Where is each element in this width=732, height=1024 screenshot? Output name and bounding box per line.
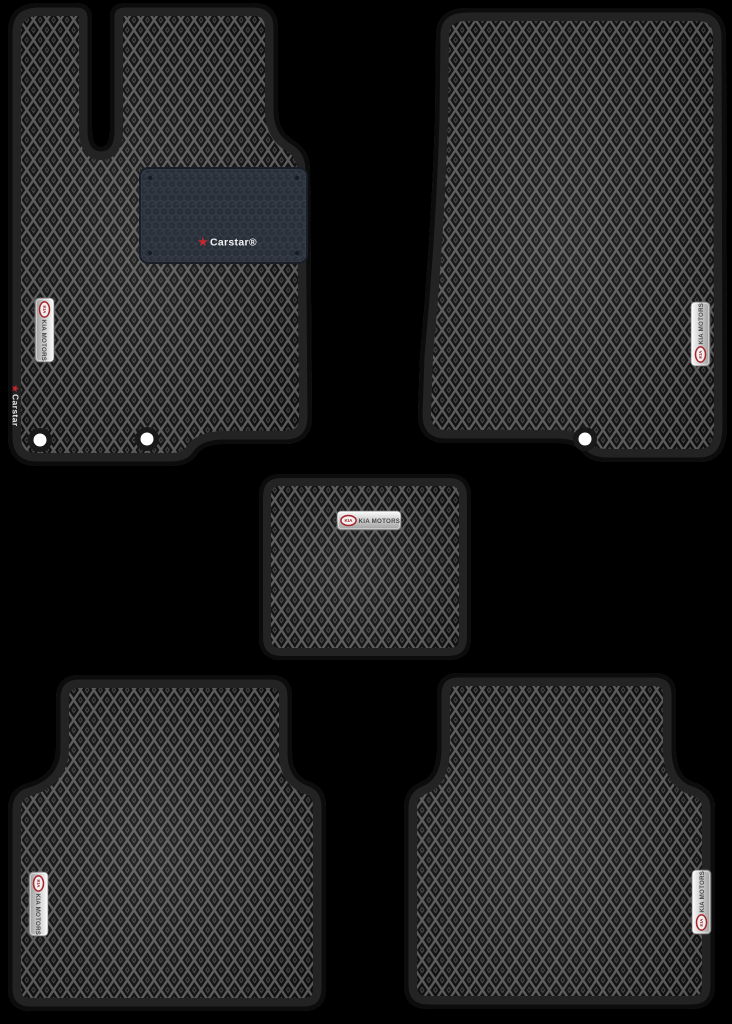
carstar-star-icon: ★ (9, 384, 20, 393)
carstar-star-icon: ★ (197, 234, 209, 249)
kia-motors-text: KIA MOTORS (40, 320, 47, 362)
product-photo-car-mat-set: ★ Carstar® KIA KIA MOTORS ★ Carstar (0, 0, 732, 1024)
carstar-edge-label-text: Carstar (11, 394, 21, 427)
kia-oval-text: KIA (698, 350, 703, 359)
kia-motors-badge-center: KIA KIA MOTORS (337, 511, 401, 530)
kia-oval-text: KIA (699, 918, 704, 927)
fastener-hole (135, 427, 159, 451)
kia-motors-text: KIA MOTORS (698, 303, 705, 345)
carstar-heel-logo-text: Carstar® (210, 237, 257, 249)
heel-pad-rivet (148, 176, 152, 180)
kia-motors-badge-driver: KIA KIA MOTORS (35, 298, 54, 362)
center-tunnel-mat: KIA KIA MOTORS (255, 470, 475, 664)
heel-pad-rivet (295, 251, 299, 255)
passenger-front-mat: KIA KIA MOTORS (410, 2, 732, 468)
kia-motors-badge-passenger: KIA KIA MOTORS (691, 302, 710, 366)
rear-right-mat: KIA KIA MOTORS (400, 668, 720, 1014)
kia-motors-text: KIA MOTORS (359, 518, 401, 525)
kia-motors-text: KIA MOTORS (699, 871, 706, 913)
kia-motors-badge-rear-right: KIA KIA MOTORS (692, 870, 711, 934)
driver-front-mat: ★ Carstar® KIA KIA MOTORS ★ Carstar (0, 0, 322, 472)
heel-pad: ★ Carstar® (140, 168, 307, 263)
carstar-edge-label: ★ Carstar (9, 384, 21, 427)
kia-motors-badge-rear-left: KIA KIA MOTORS (29, 872, 48, 936)
carstar-heel-logo: ★ Carstar® (197, 234, 257, 249)
kia-oval-text: KIA (345, 518, 354, 523)
mat-set-canvas: ★ Carstar® KIA KIA MOTORS ★ Carstar (0, 0, 732, 1024)
kia-oval-text: KIA (42, 306, 47, 315)
kia-motors-text: KIA MOTORS (34, 894, 41, 936)
kia-oval-text: KIA (36, 880, 41, 889)
heel-pad-rivet (295, 176, 299, 180)
fastener-hole (573, 427, 597, 451)
fastener-hole (28, 428, 52, 452)
heel-pad-rivet (148, 251, 152, 255)
